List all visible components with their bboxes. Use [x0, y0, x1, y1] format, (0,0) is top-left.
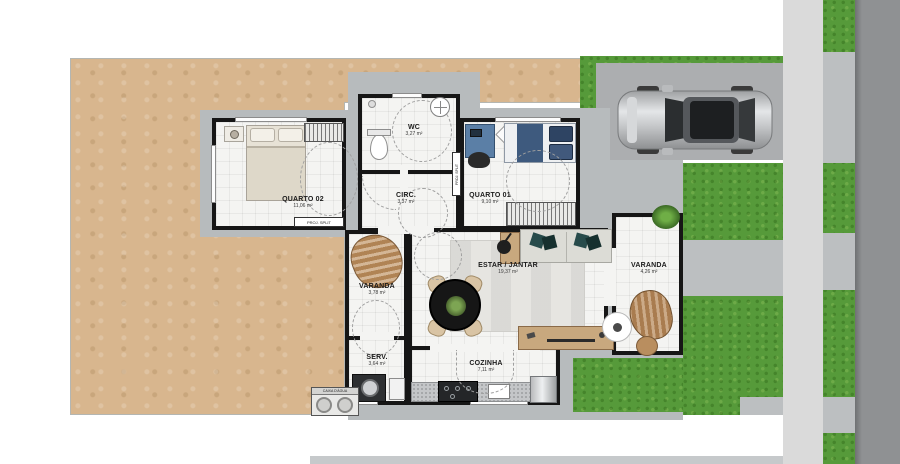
utility-sink: [389, 378, 405, 400]
room-area: 3,37 m²: [396, 200, 416, 206]
courtyard-grass-south: [573, 358, 683, 412]
sofa: [520, 229, 612, 263]
room-area: 3,78 m²: [359, 291, 395, 297]
blanket: [247, 146, 305, 200]
side-table-center: [613, 323, 622, 332]
sidewalk: [783, 0, 823, 464]
pillow: [278, 128, 303, 142]
paver-block: [823, 52, 855, 163]
room-area: 7,11 m²: [469, 368, 502, 374]
water-tank: [337, 397, 353, 413]
nightstand: [224, 126, 244, 142]
paver-block: [823, 397, 855, 433]
floor-plan-canvas: CAIXA D'ÁGUA PROJ. SPLIT PROJ. SPLIT QUA…: [0, 0, 900, 464]
paver-band: [740, 397, 783, 415]
label-wc: WC 3,27 m²: [406, 124, 423, 138]
room-area: 3,64 m²: [366, 362, 387, 368]
faucet-cross-icon: [434, 107, 447, 108]
window: [211, 145, 216, 203]
toilet-tank: [367, 129, 391, 136]
window: [495, 117, 561, 122]
room-area: 11,06 m²: [282, 204, 324, 210]
burner-icon: [444, 386, 449, 391]
water-tank-box: CAIXA D'ÁGUA: [311, 387, 359, 416]
label-serv: SERV. 3,64 m²: [366, 354, 387, 368]
sofa-cushion: [542, 235, 558, 251]
decor-tray: [547, 339, 595, 342]
clearance-arc: [352, 300, 400, 356]
room-area: 4,26 m²: [631, 270, 667, 276]
planting-strip: [823, 0, 855, 464]
label-quarto02: QUARTO 02 11,06 m²: [282, 196, 324, 210]
wc-sink: [430, 97, 450, 117]
side-table: [602, 312, 632, 342]
label-cozinha: COZINHA 7,11 m²: [469, 360, 502, 374]
street: [855, 0, 900, 464]
proj-split-box-2: PROJ. SPLIT: [452, 152, 461, 196]
wardrobe-quarto02: [304, 123, 344, 142]
burner-icon: [455, 386, 460, 391]
toilet: [370, 134, 388, 160]
paver-block: [823, 233, 855, 290]
dining-table: [429, 279, 481, 331]
desk-chair: [468, 152, 490, 168]
laptop-icon: [470, 129, 482, 137]
window: [392, 93, 422, 98]
fridge: [530, 376, 557, 403]
sofa-seat-line: [566, 232, 567, 262]
table-plant-icon: [446, 296, 466, 316]
clearance-arc: [414, 232, 462, 280]
label-varanda-dir: VARANDA 4,26 m²: [631, 262, 667, 276]
label-quarto01: QUARTO 01 9,10 m²: [469, 192, 511, 206]
varanda-plant-icon: [652, 205, 680, 229]
green-strip-top: [596, 56, 783, 63]
paver-band: [683, 240, 783, 296]
lamp-icon: [230, 130, 239, 139]
parked-car: [615, 85, 775, 155]
pillow: [250, 128, 275, 142]
washer-door: [361, 379, 379, 397]
sofa-cushion: [585, 234, 601, 250]
label-estar: ESTAR / JANTAR 19,37 m²: [478, 262, 538, 276]
shower-drain: [368, 100, 376, 108]
varanda-table: [636, 336, 658, 356]
decor-object: [526, 332, 535, 339]
label-varanda-esq: VARANDA 3,78 m²: [359, 283, 395, 297]
window: [235, 117, 307, 122]
room-area: 19,37 m²: [478, 270, 538, 276]
water-tank: [316, 397, 332, 413]
sideboard: [518, 326, 614, 350]
burner-icon: [450, 394, 455, 399]
room-area: 3,27 m²: [406, 132, 423, 138]
clearance-arc: [506, 150, 570, 212]
room-area: 9,10 m²: [469, 200, 511, 206]
bed-quarto02: [246, 125, 306, 201]
water-tank-label: CAIXA D'ÁGUA: [312, 388, 358, 395]
label-circ: CIRC. 3,37 m²: [396, 192, 416, 206]
bottom-walkway: [310, 456, 783, 464]
pillow: [549, 126, 573, 142]
proj-split-box-1: PROJ. SPLIT: [294, 217, 344, 227]
